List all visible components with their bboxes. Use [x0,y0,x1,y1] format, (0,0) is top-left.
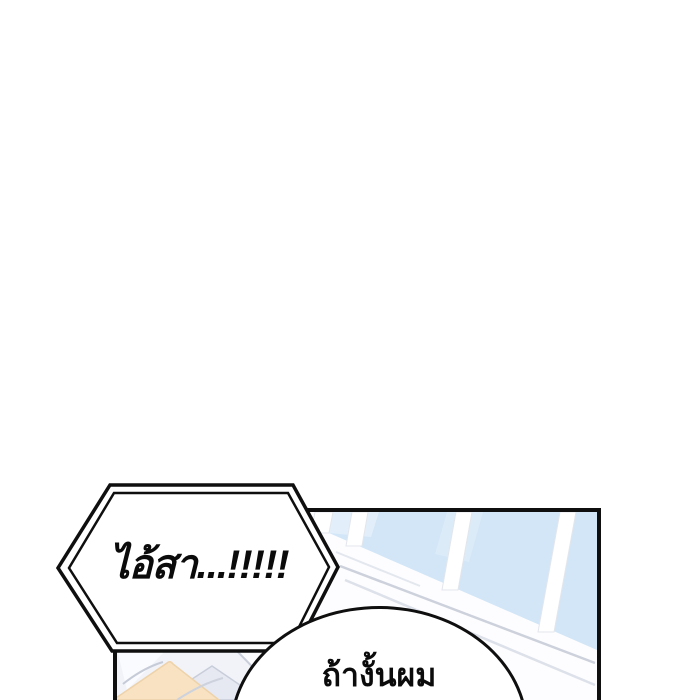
comic-page: ไอ้สา...!!!!! ถ้างั้นผม [0,0,700,700]
shout-bubble-text: ไอ้สา...!!!!! [95,544,303,586]
speech-bubble-text: ถ้างั้นผม [233,657,525,694]
